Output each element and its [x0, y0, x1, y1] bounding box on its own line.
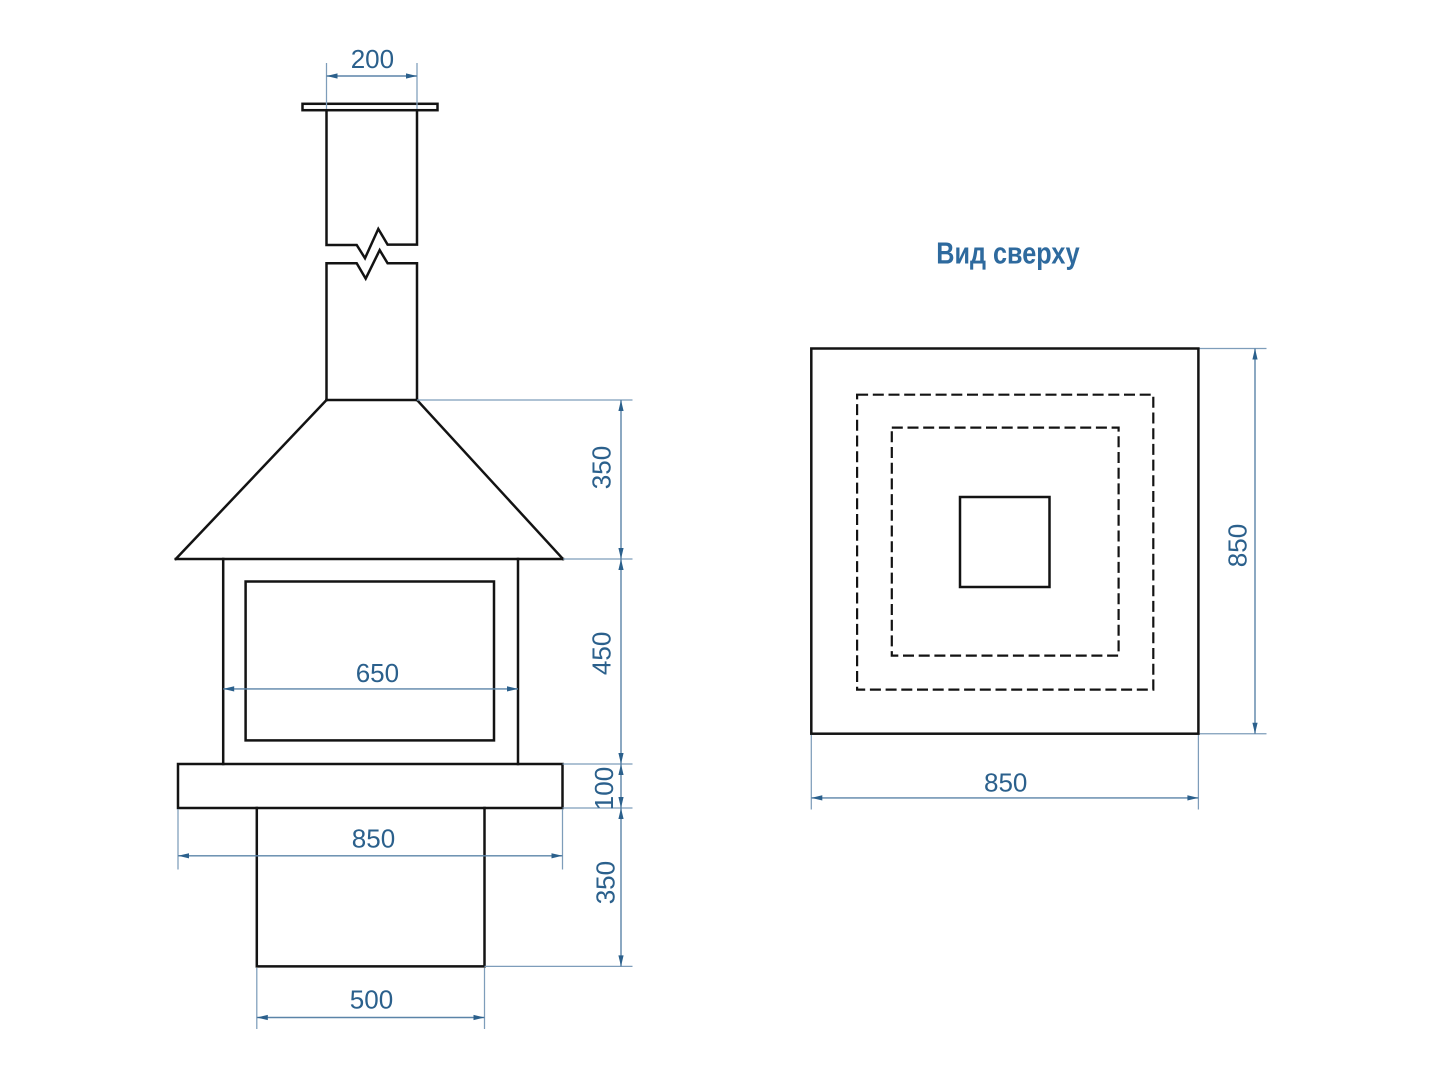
svg-text:350: 350 — [587, 446, 617, 489]
svg-text:100: 100 — [589, 767, 619, 810]
svg-text:850: 850 — [984, 768, 1027, 798]
svg-text:500: 500 — [350, 985, 393, 1015]
svg-text:200: 200 — [351, 44, 394, 74]
svg-text:650: 650 — [356, 658, 399, 688]
svg-text:450: 450 — [587, 632, 617, 675]
svg-text:850: 850 — [1223, 524, 1253, 567]
svg-text:350: 350 — [591, 861, 621, 904]
svg-text:850: 850 — [352, 824, 395, 854]
svg-text:Вид сверху: Вид сверху — [936, 235, 1080, 270]
